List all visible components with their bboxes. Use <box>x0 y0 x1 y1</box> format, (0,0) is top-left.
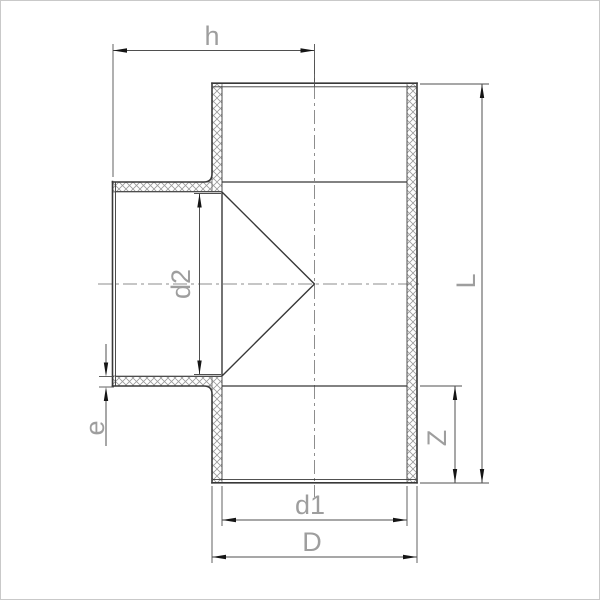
dimension-d2: d2 <box>166 194 221 375</box>
wall-hatch-branch-bottom <box>113 376 212 386</box>
arrowhead <box>453 386 457 400</box>
arrowhead <box>453 469 457 483</box>
dim-label-e: e <box>80 420 110 435</box>
arrowhead <box>113 48 127 52</box>
arrowhead <box>104 387 108 401</box>
arrowhead <box>197 361 201 375</box>
dimension-Z: Z <box>420 386 462 483</box>
arrowhead <box>393 518 407 522</box>
wall-sections <box>113 83 417 483</box>
arrowhead <box>480 84 484 98</box>
arrowhead <box>480 469 484 483</box>
left-outer-wall-upper <box>113 83 213 182</box>
wall-hatch-branch-top <box>113 182 212 192</box>
dimension-e: e <box>80 344 114 446</box>
arrowhead <box>301 48 315 52</box>
dim-label-Z: Z <box>422 430 452 447</box>
dim-label-d2: d2 <box>166 269 196 299</box>
arrowhead <box>212 555 226 559</box>
wall-hatch-right <box>407 83 417 483</box>
arrowhead <box>403 555 417 559</box>
dimension-d1: d1 <box>222 486 407 526</box>
wall-hatch-left-lower <box>212 376 222 483</box>
dim-label-d1: d1 <box>295 490 325 520</box>
arrowhead <box>104 363 108 377</box>
drawing-canvas: h d2 e d1 D <box>0 0 600 600</box>
tee-technical-drawing: h d2 e d1 D <box>1 1 599 599</box>
fitting-body <box>113 83 418 483</box>
centerlines <box>98 60 420 497</box>
wall-hatch-left-upper <box>212 83 222 192</box>
left-outer-wall-lower <box>113 386 213 483</box>
dim-label-h: h <box>204 21 219 51</box>
dim-label-L: L <box>451 273 481 288</box>
dim-label-D: D <box>302 527 322 557</box>
arrowhead <box>222 518 236 522</box>
arrowhead <box>197 194 201 208</box>
